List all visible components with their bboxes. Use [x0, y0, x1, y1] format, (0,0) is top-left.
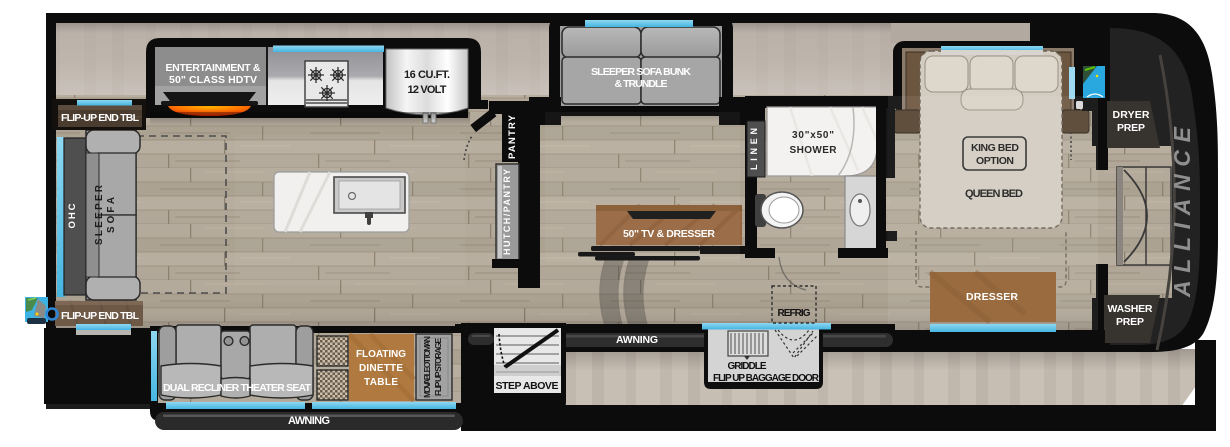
svg-text:PREP: PREP	[1117, 122, 1145, 134]
svg-text:DRYER: DRYER	[1113, 109, 1150, 121]
svg-text:PREP: PREP	[1116, 316, 1144, 328]
svg-text:DRESSER: DRESSER	[966, 291, 1018, 303]
svg-text:HUTCH/PANTRY: HUTCH/PANTRY	[502, 169, 512, 255]
svg-text:FLIP-UP END TBL: FLIP-UP END TBL	[61, 310, 140, 322]
svg-text:FLOATING: FLOATING	[356, 349, 406, 360]
svg-text:ALLIANCE: ALLIANCE	[1169, 125, 1195, 298]
svg-text:OHC: OHC	[67, 203, 78, 228]
svg-text:ENTERTAINMENT &: ENTERTAINMENT &	[166, 62, 261, 74]
svg-text:AWNING: AWNING	[616, 334, 658, 346]
svg-text:FLIP UP STORAGE: FLIP UP STORAGE	[433, 338, 443, 396]
svg-text:DUAL RECLINER THEATER SEAT: DUAL RECLINER THEATER SEAT	[163, 382, 312, 394]
svg-text:MOVABLE OTTOMAN: MOVABLE OTTOMAN	[422, 336, 432, 398]
svg-text:FLIP-UP END TBL: FLIP-UP END TBL	[61, 112, 140, 124]
svg-text:SHOWER: SHOWER	[790, 145, 838, 156]
svg-text:WASHER: WASHER	[1108, 303, 1153, 315]
svg-text:& TRUNDLE: & TRUNDLE	[615, 78, 668, 90]
svg-text:30"x50": 30"x50"	[792, 130, 834, 141]
svg-text:SLEEPER SOFA BUNK: SLEEPER SOFA BUNK	[591, 66, 691, 78]
svg-text:TABLE: TABLE	[364, 377, 398, 388]
svg-text:STEP ABOVE: STEP ABOVE	[496, 380, 559, 392]
svg-text:PANTRY: PANTRY	[507, 114, 518, 159]
svg-text:DINETTE: DINETTE	[359, 363, 403, 374]
svg-text:REFRIG: REFRIG	[778, 308, 811, 319]
svg-text:AWNING: AWNING	[288, 415, 330, 427]
svg-text:GRIDDLE: GRIDDLE	[728, 361, 767, 372]
svg-text:FLIP UP BAGGAGE DOOR: FLIP UP BAGGAGE DOOR	[713, 373, 820, 384]
svg-text:12 VOLT: 12 VOLT	[408, 84, 447, 96]
svg-text:16 CU.FT.: 16 CU.FT.	[404, 69, 450, 81]
svg-text:50" CLASS HDTV: 50" CLASS HDTV	[169, 74, 257, 86]
